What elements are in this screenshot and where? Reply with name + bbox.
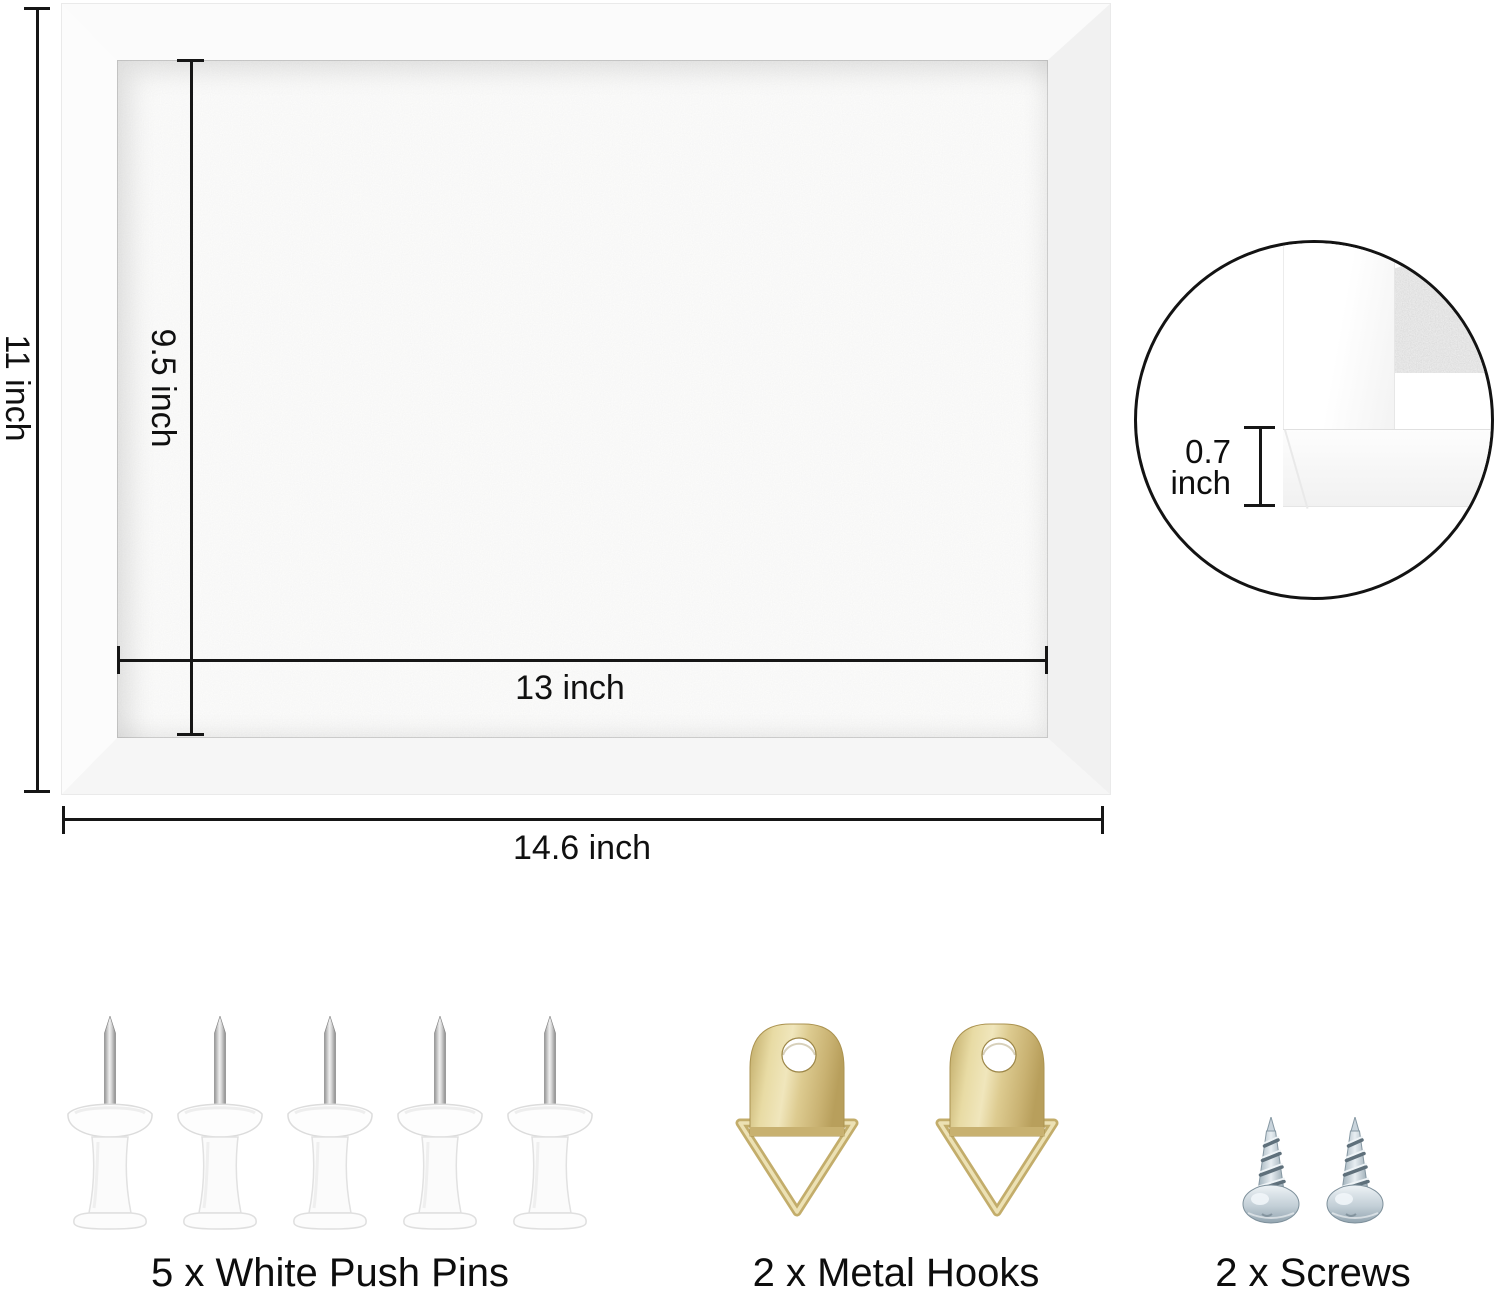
metal-hooks-group	[731, 1021, 1063, 1223]
dim-label-outer-height: 11 inch	[0, 334, 34, 441]
bulletin-board-dimension-diagram: 11 inch 9.5 inch 13 inch 14.6 inch 0.7 i…	[0, 0, 1500, 1293]
dim-tick-inner-height-top	[177, 59, 204, 62]
dim-tick-outer-width-right	[1101, 806, 1104, 834]
dim-line-outer-width	[62, 818, 1104, 821]
dim-tick-outer-width-left	[62, 806, 65, 834]
felt-edge-closeup	[1379, 240, 1494, 373]
dim-tick-inner-width-right	[1045, 646, 1048, 674]
dim-label-inner-height: 9.5 inch	[146, 328, 180, 447]
dim-line-thickness	[1259, 427, 1262, 507]
dim-tick-inner-width-left	[117, 646, 120, 674]
push-pin-icon	[284, 1016, 376, 1230]
caption-metal-hooks: 2 x Metal Hooks	[753, 1252, 1040, 1293]
screws-group	[1240, 1117, 1386, 1225]
dim-label-outer-width: 14.6 inch	[513, 831, 651, 865]
caption-screws: 2 x Screws	[1215, 1252, 1411, 1293]
dim-line-outer-height	[36, 8, 39, 792]
dim-label-inner-width: 13 inch	[515, 671, 625, 705]
push-pin-icon	[174, 1016, 266, 1230]
dim-tick-inner-height-bottom	[177, 733, 204, 736]
push-pin-icon	[394, 1016, 486, 1230]
felt-shadow-overlay	[117, 60, 1048, 738]
screw-icon	[1240, 1117, 1302, 1225]
screw-icon	[1324, 1117, 1386, 1225]
push-pin-icon	[64, 1016, 156, 1230]
dim-line-inner-width	[117, 659, 1048, 662]
dim-tick-thickness-top	[1244, 426, 1275, 429]
dim-tick-thickness-bottom	[1244, 504, 1275, 507]
dim-label-thickness: 0.7 inch	[1137, 436, 1231, 498]
push-pin-icon	[504, 1016, 596, 1230]
caption-push-pins: 5 x White Push Pins	[151, 1252, 509, 1293]
frame-profile-side-face	[1283, 240, 1395, 429]
metal-hook-icon	[731, 1021, 863, 1223]
dim-line-inner-height	[190, 60, 193, 736]
push-pins-group	[64, 1016, 596, 1230]
frame-thickness-detail-circle: 0.7 inch	[1134, 240, 1494, 600]
frame-profile-front-face	[1283, 429, 1494, 507]
dim-tick-outer-height-top	[24, 7, 50, 10]
dim-label-thickness-unit: inch	[1137, 467, 1231, 498]
felt-surface	[117, 60, 1048, 738]
dim-label-thickness-value: 0.7	[1137, 436, 1231, 467]
metal-hook-icon	[931, 1021, 1063, 1223]
dim-tick-outer-height-bottom	[24, 790, 50, 793]
